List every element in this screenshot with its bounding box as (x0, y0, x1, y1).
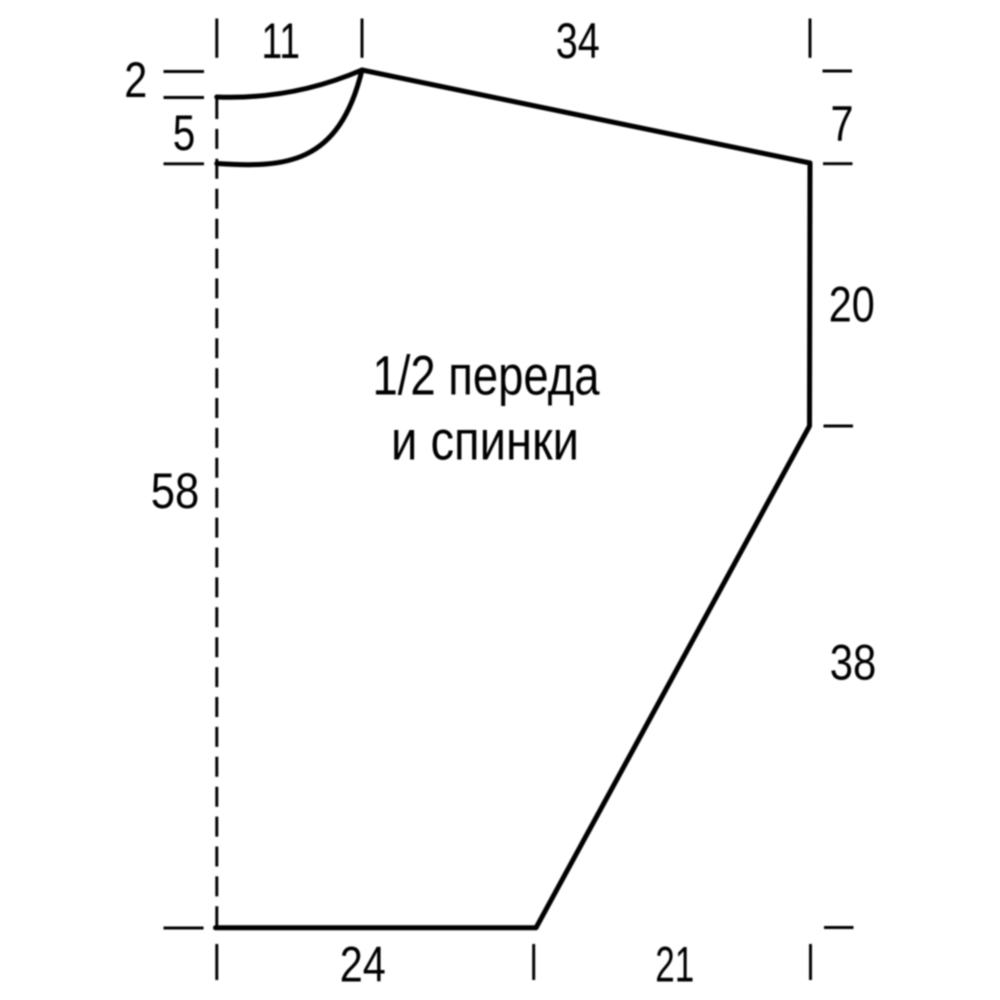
svg-text:7: 7 (831, 96, 854, 152)
svg-text:1/2 переда: 1/2 переда (373, 344, 601, 407)
svg-text:21: 21 (655, 937, 694, 993)
svg-text:11: 11 (262, 13, 301, 69)
svg-text:2: 2 (124, 52, 147, 108)
svg-text:20: 20 (829, 277, 875, 333)
svg-text:24: 24 (340, 937, 386, 993)
svg-text:34: 34 (556, 13, 600, 69)
svg-text:5: 5 (173, 105, 196, 161)
svg-text:38: 38 (830, 635, 877, 691)
svg-text:и спинки: и спинки (391, 409, 579, 472)
svg-text:58: 58 (151, 463, 200, 519)
